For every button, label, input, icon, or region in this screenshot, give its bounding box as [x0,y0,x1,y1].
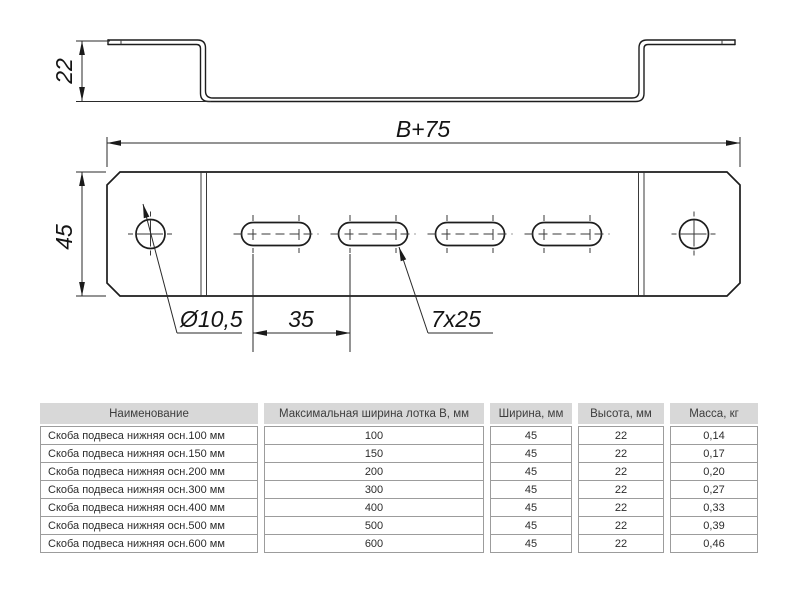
column-header: Высота, мм [578,403,664,424]
slot-hole [234,215,319,253]
product-name-cell: Скоба подвеса нижняя осн.300 мм [40,480,258,499]
value-cell: 0,46 [670,534,758,553]
value-cell: 0,27 [670,480,758,499]
value-cell: 100 [264,426,484,445]
dim-label-overall-width: B+75 [396,116,451,142]
column-header: Наименование [40,403,258,424]
value-cell: 400 [264,498,484,517]
table-column: Ширина, мм45454545454545 [490,403,572,553]
value-cell: 0,14 [670,426,758,445]
profile-outer-line [108,40,735,98]
value-cell: 45 [490,498,572,517]
value-cell: 45 [490,444,572,463]
value-cell: 0,39 [670,516,758,535]
product-name-cell: Скоба подвеса нижняя осн.400 мм [40,498,258,517]
value-cell: 22 [578,480,664,499]
dim-label-slot-size: 7x25 [431,306,481,332]
dim-label-plate-height: 45 [51,224,77,250]
value-cell: 500 [264,516,484,535]
value-cell: 150 [264,444,484,463]
dim-label-slot-pitch: 35 [288,306,314,332]
value-cell: 200 [264,462,484,481]
slot-hole [428,215,513,253]
plan-view: B+75 45 [51,116,740,352]
dim-label-hole-diameter: Ø10,5 [179,306,243,332]
product-name-cell: Скоба подвеса нижняя осн.100 мм [40,426,258,445]
slot-hole [525,215,610,253]
value-cell: 0,20 [670,462,758,481]
column-header: Ширина, мм [490,403,572,424]
table-column: Высота, мм22222222222222 [578,403,664,553]
table-column: Масса, кг0,140,170,200,270,330,390,46 [670,403,758,553]
table-column: Максимальная ширина лотка B, мм100150200… [264,403,484,553]
value-cell: 22 [578,498,664,517]
side-view: 22 [51,40,735,102]
product-name-cell: Скоба подвеса нижняя осн.150 мм [40,444,258,463]
product-name-cell: Скоба подвеса нижняя осн.500 мм [40,516,258,535]
value-cell: 45 [490,516,572,535]
slot-hole [331,215,416,253]
value-cell: 0,17 [670,444,758,463]
dim-label-profile-height: 22 [51,58,77,85]
table-column: НаименованиеСкоба подвеса нижняя осн.100… [40,403,258,553]
value-cell: 22 [578,462,664,481]
column-header: Масса, кг [670,403,758,424]
value-cell: 45 [490,426,572,445]
value-cell: 45 [490,480,572,499]
value-cell: 45 [490,534,572,553]
technical-drawing: 22 B+75 [0,0,800,395]
value-cell: 22 [578,516,664,535]
value-cell: 22 [578,426,664,445]
value-cell: 0,33 [670,498,758,517]
product-name-cell: Скоба подвеса нижняя осн.200 мм [40,462,258,481]
column-header: Максимальная ширина лотка B, мм [264,403,484,424]
value-cell: 22 [578,534,664,553]
leader-line-slot [399,247,428,333]
page: 22 B+75 [0,0,800,600]
spec-table: НаименованиеСкоба подвеса нижняя осн.100… [40,403,758,553]
profile-inner-line [108,45,735,102]
plate-outline [107,172,740,296]
value-cell: 45 [490,462,572,481]
product-name-cell: Скоба подвеса нижняя осн.600 мм [40,534,258,553]
value-cell: 22 [578,444,664,463]
value-cell: 600 [264,534,484,553]
value-cell: 300 [264,480,484,499]
